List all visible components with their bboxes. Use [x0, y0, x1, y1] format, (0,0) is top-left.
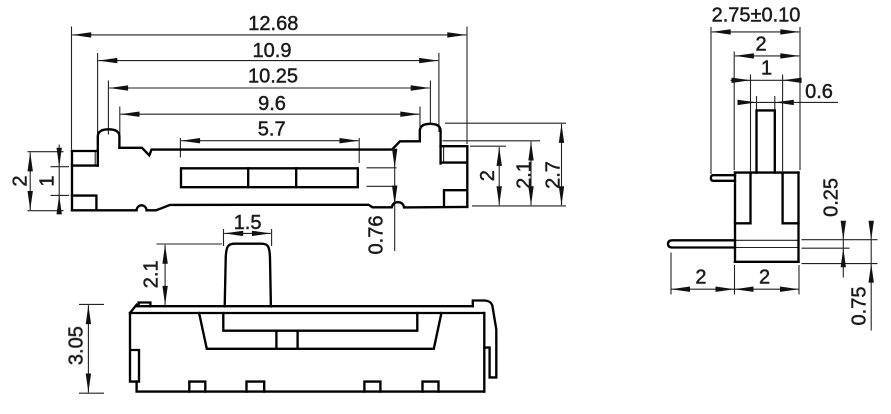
svg-text:2: 2 — [10, 175, 32, 186]
svg-text:2.7: 2.7 — [543, 161, 565, 189]
svg-text:3.05: 3.05 — [66, 326, 88, 365]
svg-text:2: 2 — [477, 170, 499, 181]
svg-text:10.25: 10.25 — [248, 65, 298, 87]
svg-text:0.75: 0.75 — [849, 287, 871, 326]
svg-text:1.5: 1.5 — [234, 212, 262, 234]
svg-text:9.6: 9.6 — [258, 93, 286, 115]
svg-text:0.6: 0.6 — [805, 81, 833, 103]
svg-text:2: 2 — [695, 267, 706, 289]
svg-text:2.1: 2.1 — [514, 161, 536, 189]
svg-text:0.76: 0.76 — [366, 216, 388, 255]
svg-text:2.75±0.10: 2.75±0.10 — [712, 5, 801, 27]
svg-text:2: 2 — [759, 267, 770, 289]
svg-text:1: 1 — [37, 175, 59, 186]
svg-text:10.9: 10.9 — [253, 40, 292, 62]
svg-text:2.1: 2.1 — [141, 260, 163, 288]
svg-text:1: 1 — [761, 57, 772, 79]
svg-text:12.68: 12.68 — [248, 13, 298, 35]
svg-text:2: 2 — [755, 34, 766, 56]
svg-text:0.25: 0.25 — [821, 178, 843, 217]
svg-text:5.7: 5.7 — [258, 119, 286, 141]
